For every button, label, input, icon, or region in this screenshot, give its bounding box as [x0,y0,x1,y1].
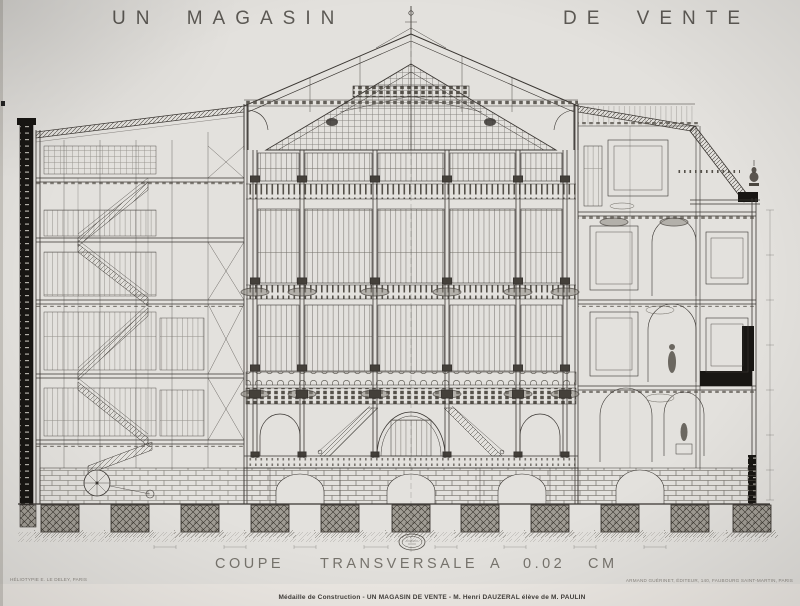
vignette [0,0,800,606]
photographed-architectural-plate: UN MAGASIN DE VENTE [0,0,800,606]
section-drawing: UN MAGASIN DE VENTE [0,0,800,606]
